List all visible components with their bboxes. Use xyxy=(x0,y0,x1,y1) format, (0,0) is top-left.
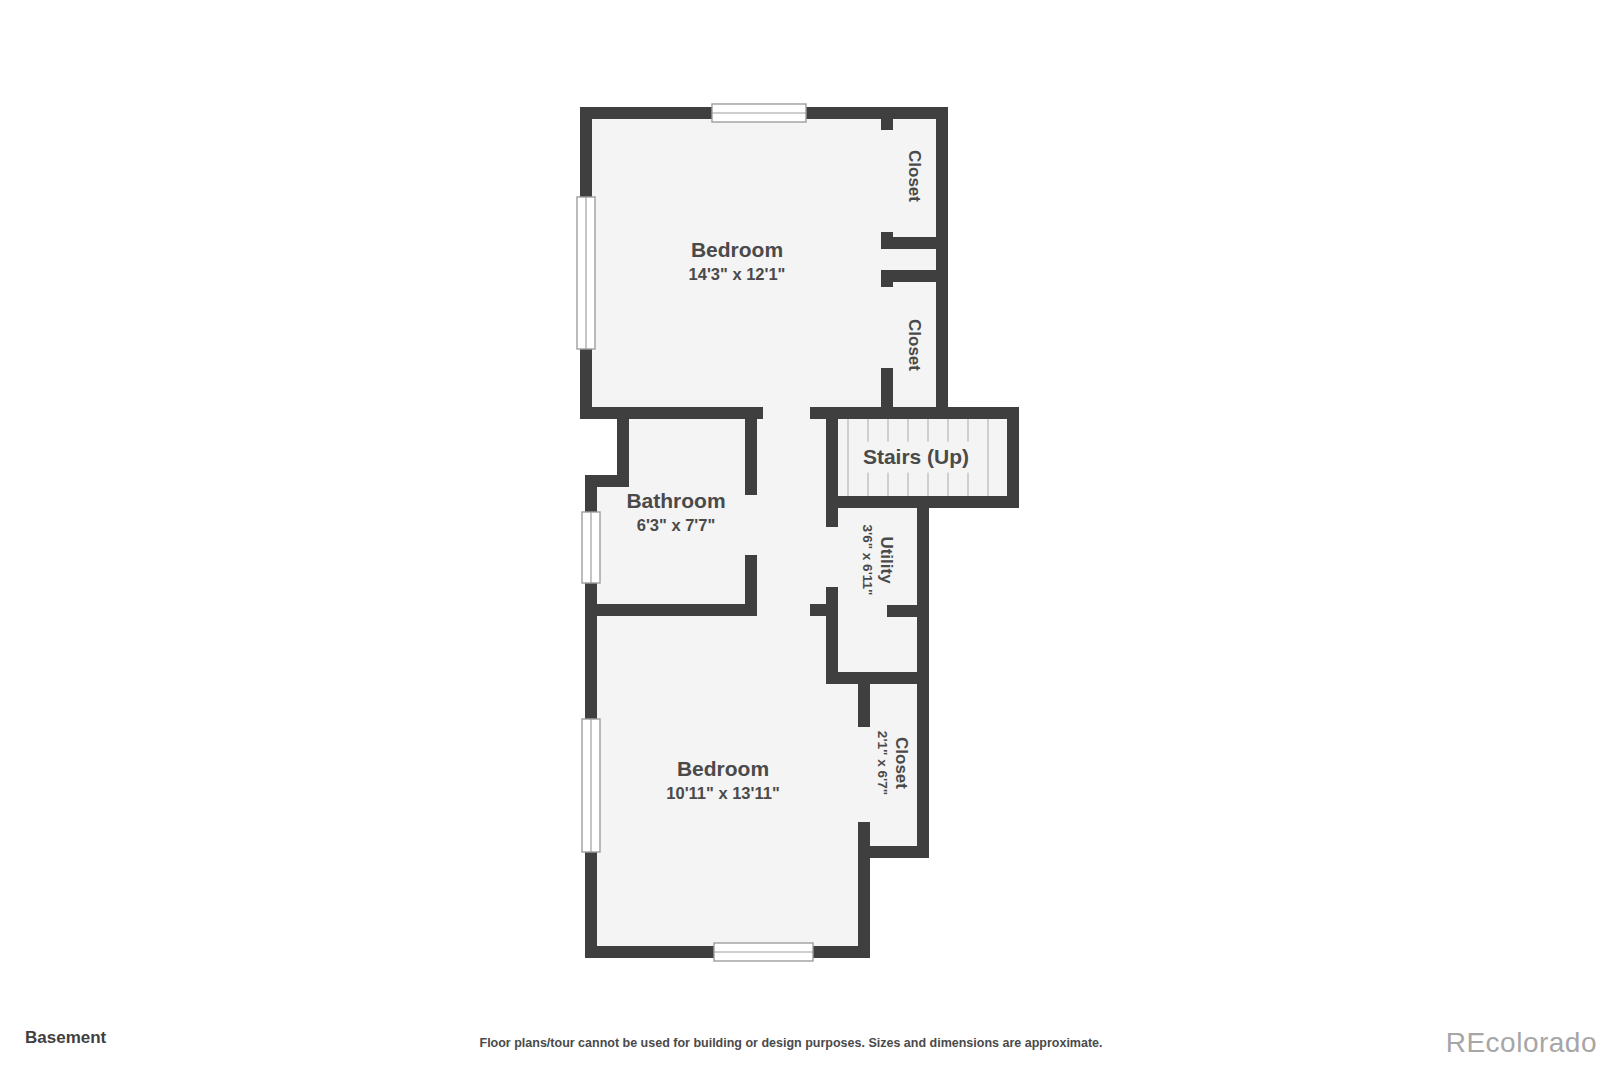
room-name: Bathroom xyxy=(626,489,725,514)
room-dims: 14'3" x 12'1" xyxy=(689,265,786,284)
room-label-bedroom-top: Bedroom 14'3" x 12'1" xyxy=(689,238,786,284)
room-name: Closet xyxy=(891,731,911,795)
room-label-bedroom-bottom: Bedroom 10'11" x 13'11" xyxy=(666,757,779,803)
room-label-closet-bottom: Closet 2'1" x 6'7" xyxy=(875,731,912,795)
room-dims: 6'3" x 7'7" xyxy=(626,516,725,535)
room-label-stairs: Stairs (Up) xyxy=(854,442,978,473)
room-name: Bedroom xyxy=(666,757,779,782)
room-name: Closet xyxy=(904,150,924,202)
disclaimer-text: Floor plans/tour cannot be used for buil… xyxy=(479,1036,1102,1050)
room-dims: 2'1" x 6'7" xyxy=(875,731,891,795)
room-name: Stairs (Up) xyxy=(854,442,978,473)
room-label-closet-top-1: Closet xyxy=(904,150,924,202)
floor-title: Basement xyxy=(25,1028,106,1048)
room-label-bathroom: Bathroom 6'3" x 7'7" xyxy=(626,489,725,535)
room-label-utility: Utility 3'6" x 6'11" xyxy=(860,524,897,595)
floor-plan-drawing xyxy=(0,0,1600,1066)
room-name: Utility xyxy=(876,524,896,595)
room-label-closet-top-2: Closet xyxy=(904,319,924,371)
room-name: Bedroom xyxy=(689,238,786,263)
floor-plan-page: Bedroom 14'3" x 12'1" Closet Closet Stai… xyxy=(0,0,1600,1066)
room-dims: 3'6" x 6'11" xyxy=(860,524,876,595)
recolorado-logo: REcolorado xyxy=(1446,1027,1597,1059)
room-name: Closet xyxy=(904,319,924,371)
room-dims: 10'11" x 13'11" xyxy=(666,784,779,803)
